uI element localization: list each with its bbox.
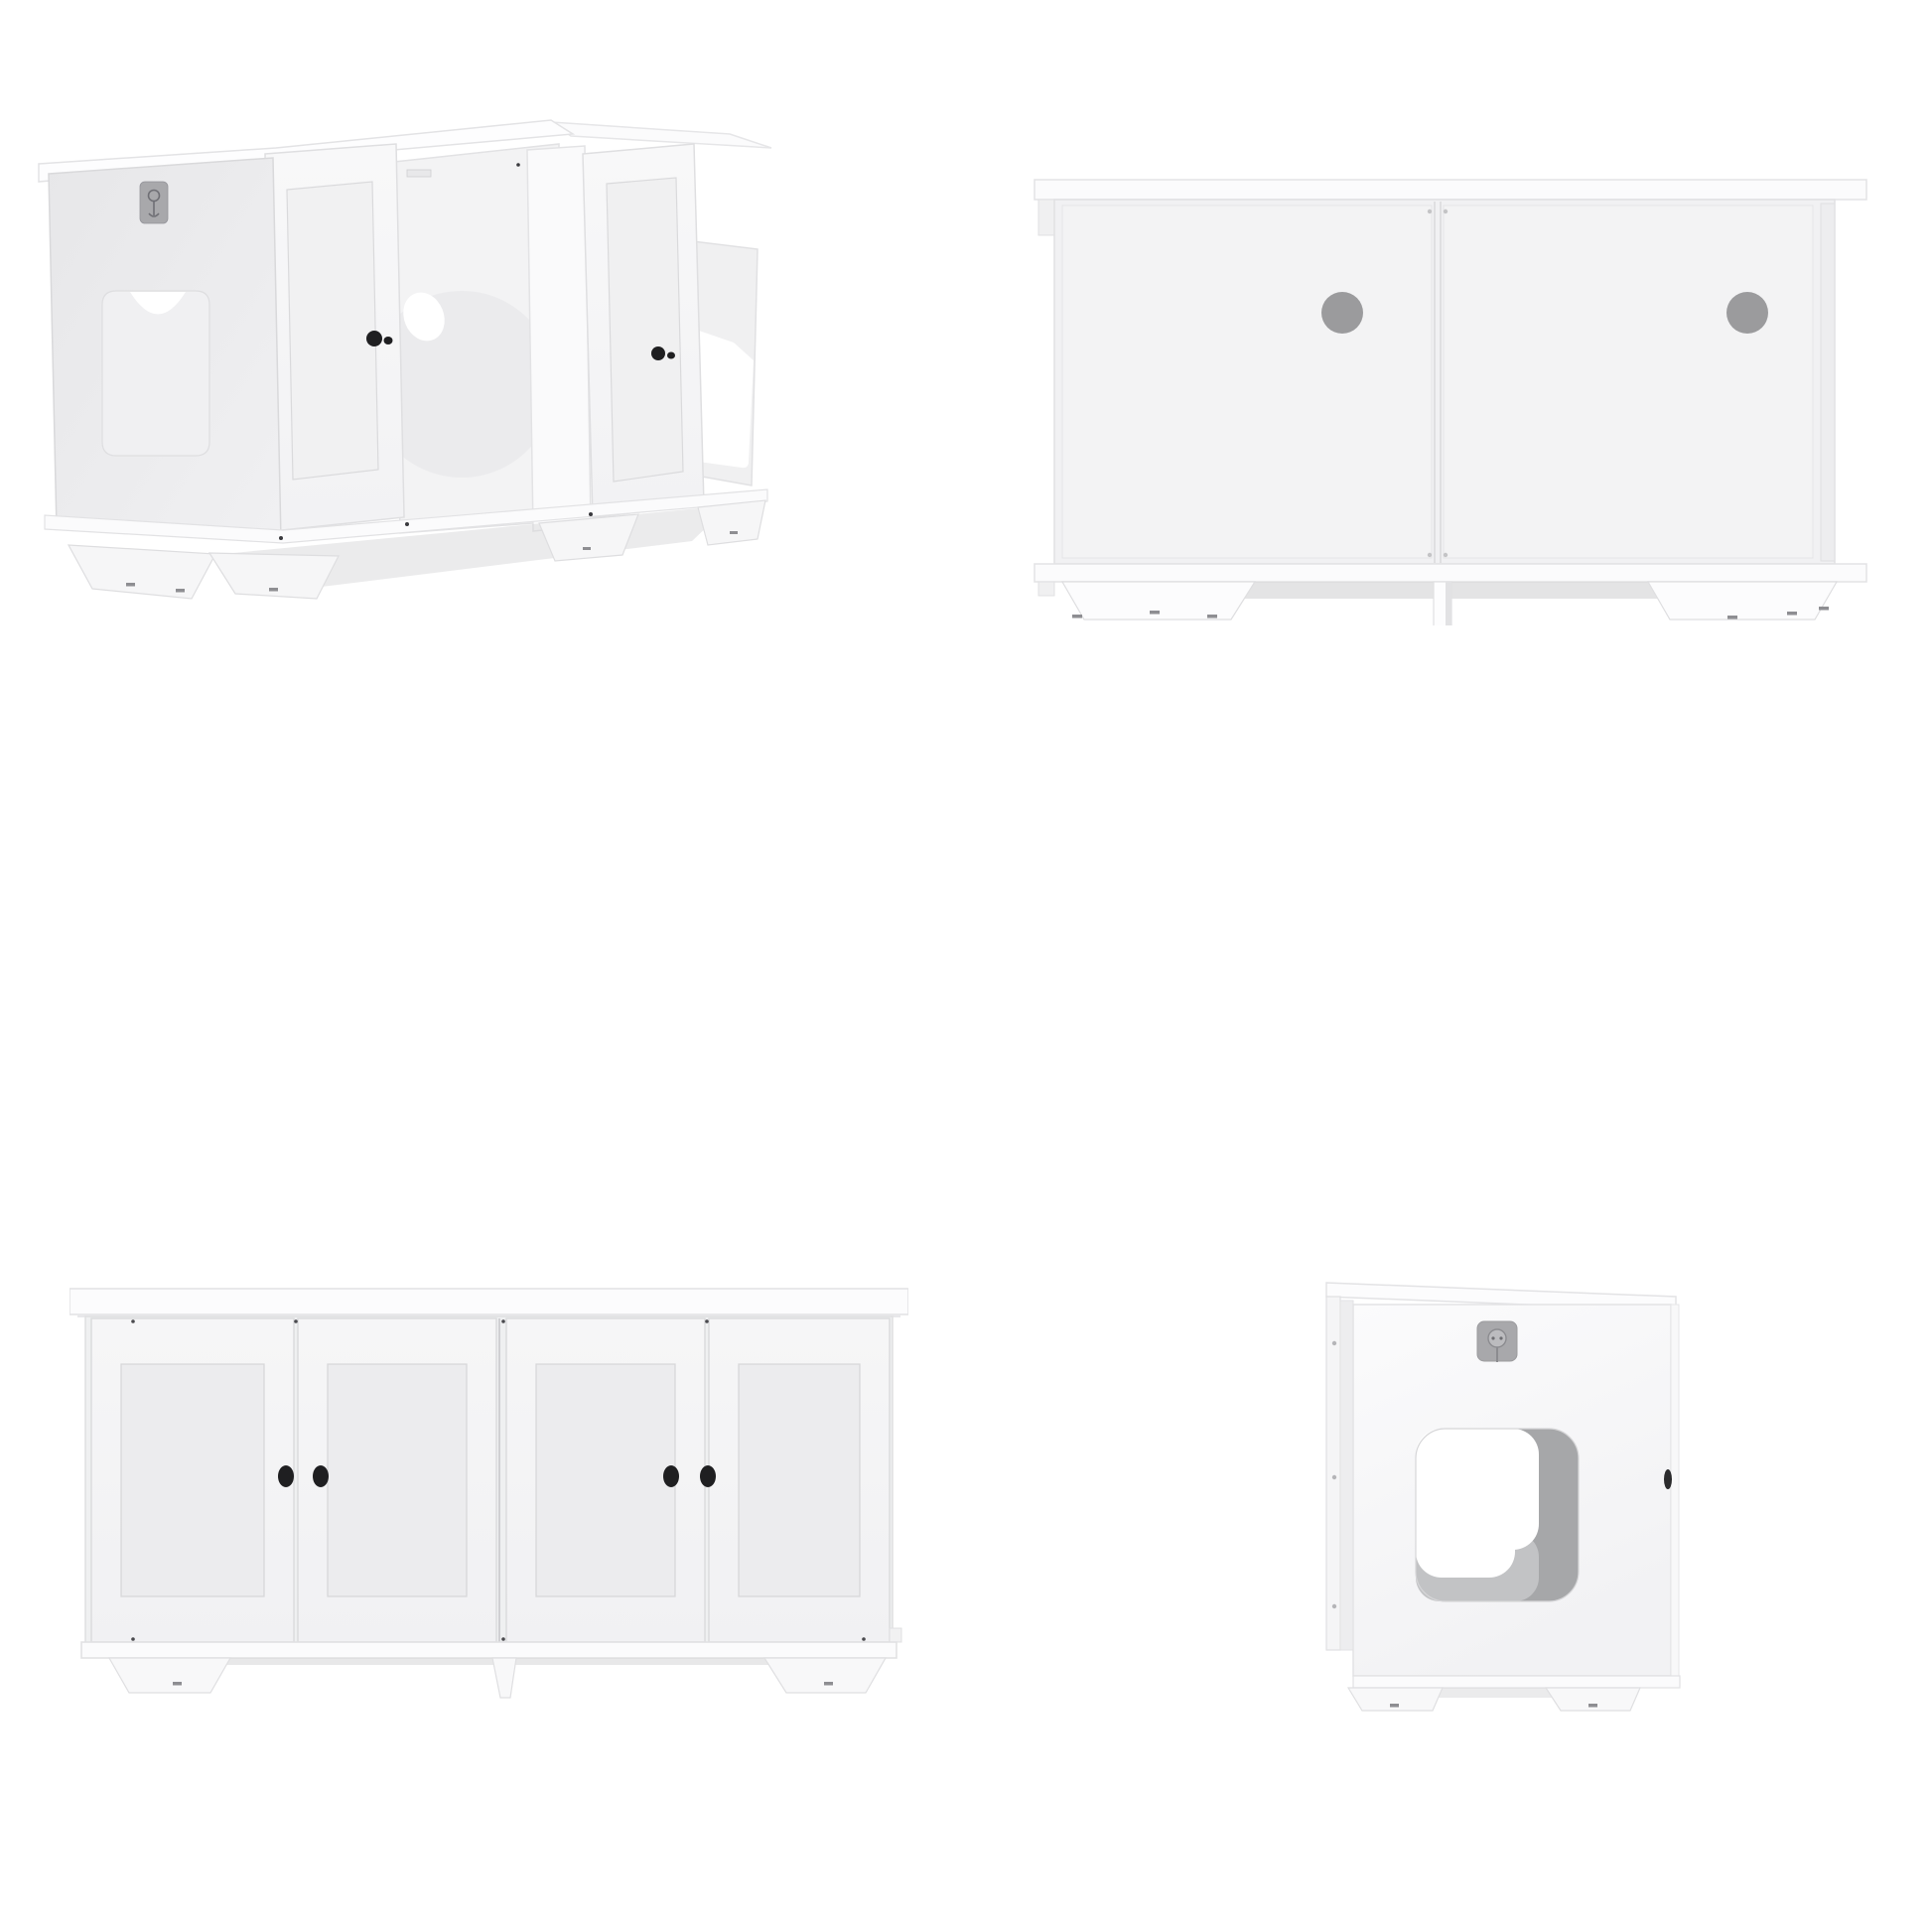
unit-divider-panel <box>527 146 591 531</box>
pet-entry-cutout <box>1416 1429 1579 1601</box>
top-slab-left-tab <box>1038 200 1054 235</box>
power-cord-plaque-icon <box>1477 1321 1517 1362</box>
cabinet-foot <box>1546 1688 1640 1711</box>
door-knob <box>278 1465 294 1487</box>
cabinet-foot <box>698 500 765 545</box>
door-knob <box>366 331 382 346</box>
top-slab <box>69 1289 908 1314</box>
front-view-render <box>69 1281 908 1700</box>
cabinet-foot <box>1348 1688 1443 1711</box>
side-entry-cutout <box>102 291 209 456</box>
center-divider-shade <box>1446 582 1451 625</box>
back-frame-strip <box>1326 1297 1353 1650</box>
front-edge-sliver <box>1671 1305 1679 1676</box>
open-door-left <box>265 144 404 531</box>
cabinet-foot <box>109 1658 230 1693</box>
door-recessed-panel <box>536 1364 675 1596</box>
cord-hole-left <box>1321 292 1363 334</box>
door-recessed-panel <box>607 178 683 482</box>
door-knob-stem <box>667 352 675 359</box>
side-panel <box>49 158 281 541</box>
door-recessed-panel <box>739 1364 860 1596</box>
door-3 <box>506 1318 705 1642</box>
door-knob-edge <box>1664 1469 1672 1489</box>
cutout-opening-lower <box>1416 1429 1515 1578</box>
cabinet-foot <box>764 1658 886 1693</box>
door-recessed-panel <box>287 182 378 480</box>
door-recessed-panel <box>121 1364 264 1596</box>
right-edge-strip <box>1821 204 1835 561</box>
cabinet-foot <box>209 553 339 599</box>
door-knob <box>651 346 665 360</box>
cabinet-foot <box>1648 582 1837 620</box>
door-recessed-panel <box>328 1364 467 1596</box>
product-image-grid <box>0 0 1932 1932</box>
product-view-side <box>1291 1269 1688 1716</box>
top-slab <box>1035 180 1866 200</box>
back-panel-right <box>1444 206 1813 558</box>
cabinet-foot <box>539 514 638 561</box>
center-divider-foot <box>492 1658 516 1698</box>
right-side-step <box>890 1628 901 1642</box>
outlet-glyph <box>1488 1329 1506 1347</box>
product-view-front <box>69 1281 908 1700</box>
base-rail <box>1035 564 1866 582</box>
door-4 <box>700 1318 890 1642</box>
label-sticker <box>407 170 431 177</box>
bottom-slab <box>1353 1676 1680 1688</box>
cabinet-foot <box>69 545 215 599</box>
product-view-perspective-open <box>35 104 774 616</box>
door-knob <box>700 1465 716 1487</box>
back-view-render <box>1033 174 1871 625</box>
cord-hole-right <box>1726 292 1768 334</box>
open-door-right <box>583 144 704 517</box>
door-knob-stem <box>384 337 393 345</box>
back-panel-left <box>1062 206 1432 558</box>
door-1 <box>91 1318 294 1642</box>
product-view-back <box>1033 174 1871 625</box>
base-rail <box>81 1642 897 1658</box>
base-left-tab <box>1038 582 1054 596</box>
perspective-open-render <box>35 104 774 616</box>
door-2 <box>298 1318 496 1642</box>
door-knob <box>663 1465 679 1487</box>
door-knob <box>313 1465 329 1487</box>
side-view-render <box>1291 1269 1688 1716</box>
